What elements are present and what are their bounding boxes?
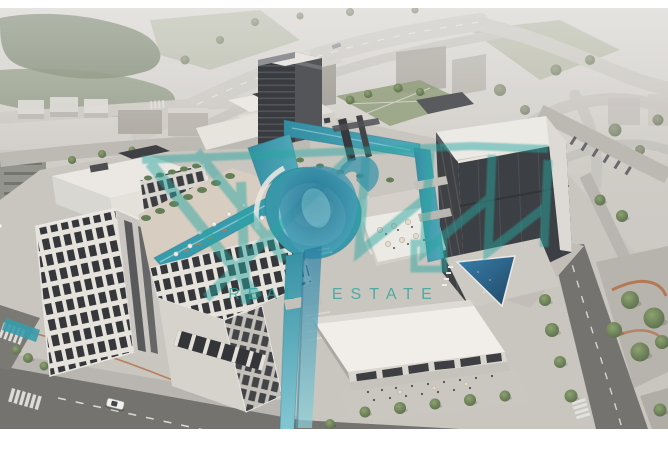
- render-scene: [0, 0, 668, 452]
- aerial-render-photo: REAL ESTATE: [0, 0, 668, 452]
